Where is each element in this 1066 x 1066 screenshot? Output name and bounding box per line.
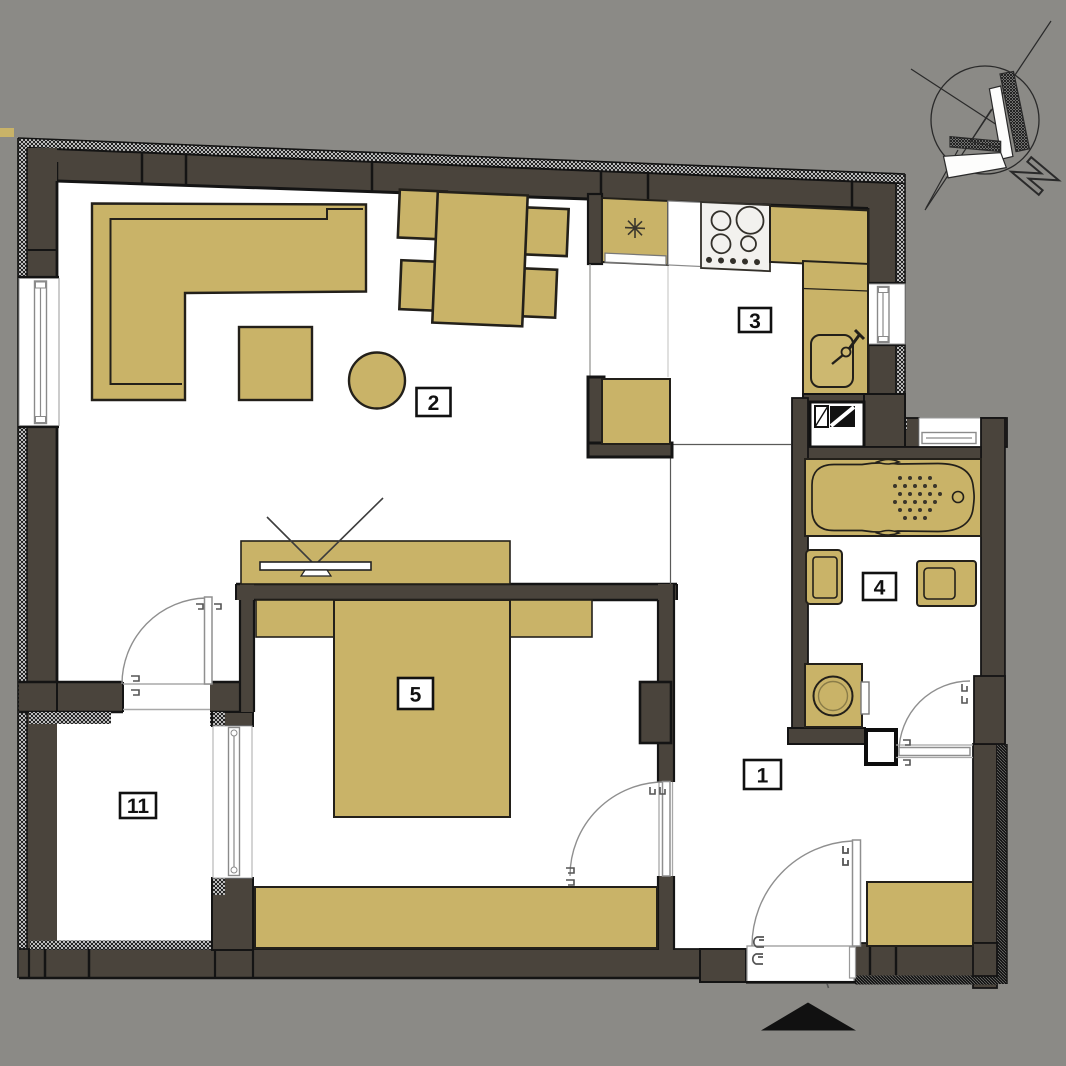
svg-text:11: 11	[127, 795, 150, 818]
svg-text:3: 3	[749, 310, 761, 333]
svg-text:1: 1	[757, 764, 769, 787]
svg-text:2: 2	[428, 392, 440, 415]
svg-text:5: 5	[410, 683, 422, 706]
svg-text:4: 4	[874, 576, 886, 599]
